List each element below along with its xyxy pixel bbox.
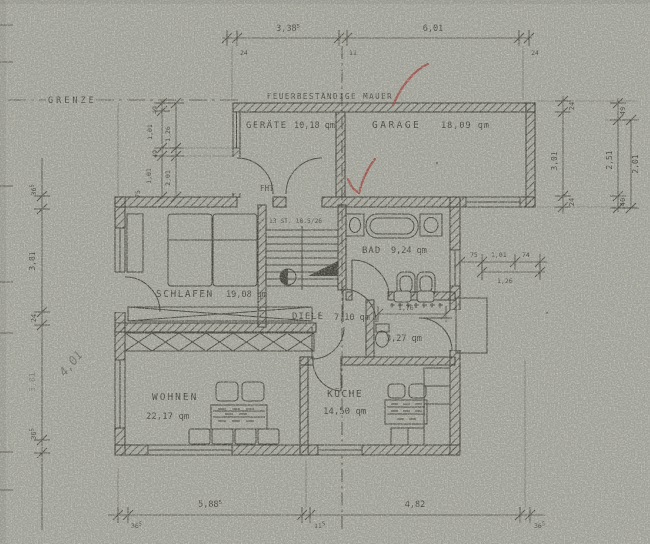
paper-grain-light: [0, 0, 650, 544]
scanned-floor-plan: GRENZE FEUERBESTÄNDIGE MAUER GERÄTE 10,1…: [0, 0, 650, 544]
floor-plan-drawing: GRENZE FEUERBESTÄNDIGE MAUER GERÄTE 10,1…: [0, 0, 650, 544]
scan-edge-left: [0, 0, 6, 544]
scan-edge-top: [0, 0, 650, 4]
